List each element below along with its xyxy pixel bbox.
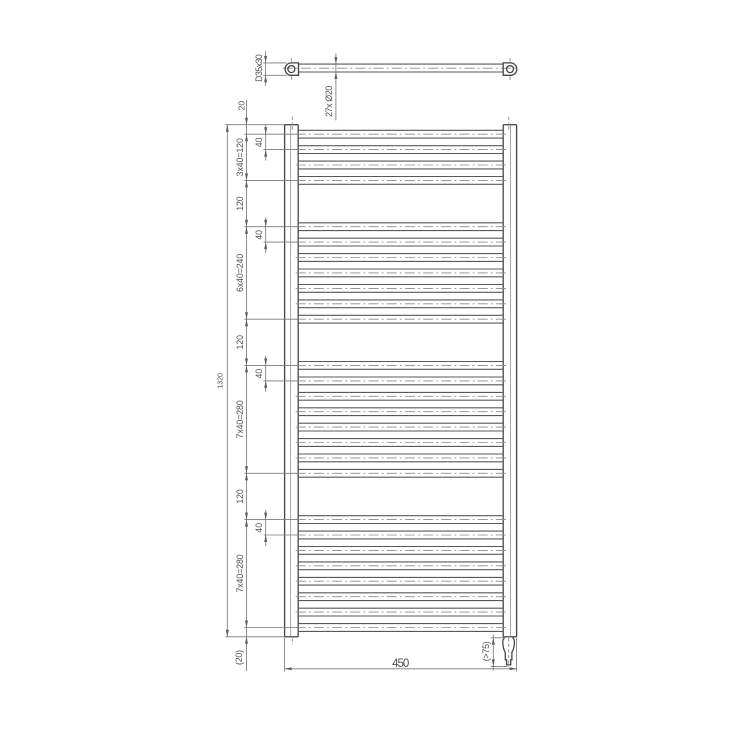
svg-text:6x40=240: 6x40=240 [235, 254, 245, 292]
svg-text:D35x30: D35x30 [254, 54, 264, 82]
svg-text:120: 120 [235, 335, 245, 350]
svg-text:(>75): (>75) [481, 641, 491, 661]
svg-text:120: 120 [235, 489, 245, 504]
svg-text:1320: 1320 [217, 373, 224, 389]
svg-text:7x40=280: 7x40=280 [235, 400, 245, 438]
svg-text:27x Ø20: 27x Ø20 [324, 86, 334, 117]
svg-text:450: 450 [392, 658, 409, 670]
svg-text:20: 20 [236, 101, 246, 111]
svg-text:40: 40 [254, 230, 264, 240]
svg-text:120: 120 [235, 196, 245, 211]
svg-text:40: 40 [254, 369, 264, 379]
svg-text:7x40=280: 7x40=280 [235, 554, 245, 592]
svg-text:(20): (20) [234, 650, 244, 665]
svg-text:40: 40 [254, 523, 264, 533]
svg-text:3x40=120: 3x40=120 [235, 138, 245, 176]
svg-text:40: 40 [254, 137, 264, 147]
